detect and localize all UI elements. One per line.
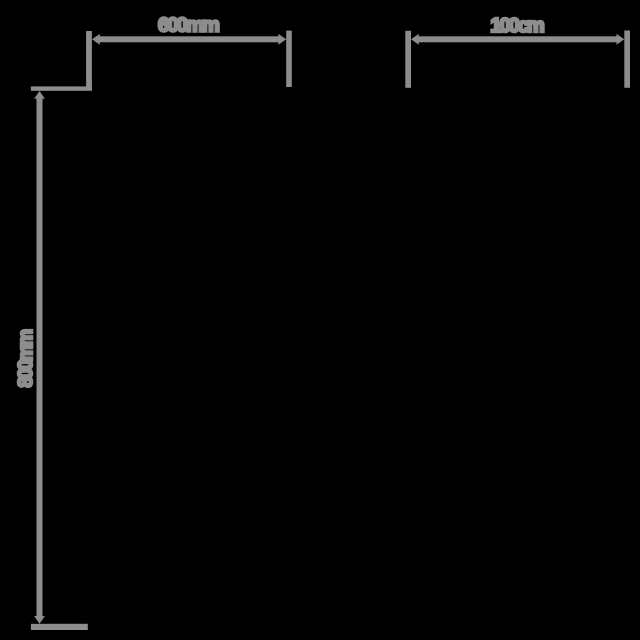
svg-text:800mm: 800mm	[15, 330, 37, 388]
svg-text:600mm: 600mm	[158, 15, 219, 37]
svg-text:100cm: 100cm	[490, 15, 543, 37]
